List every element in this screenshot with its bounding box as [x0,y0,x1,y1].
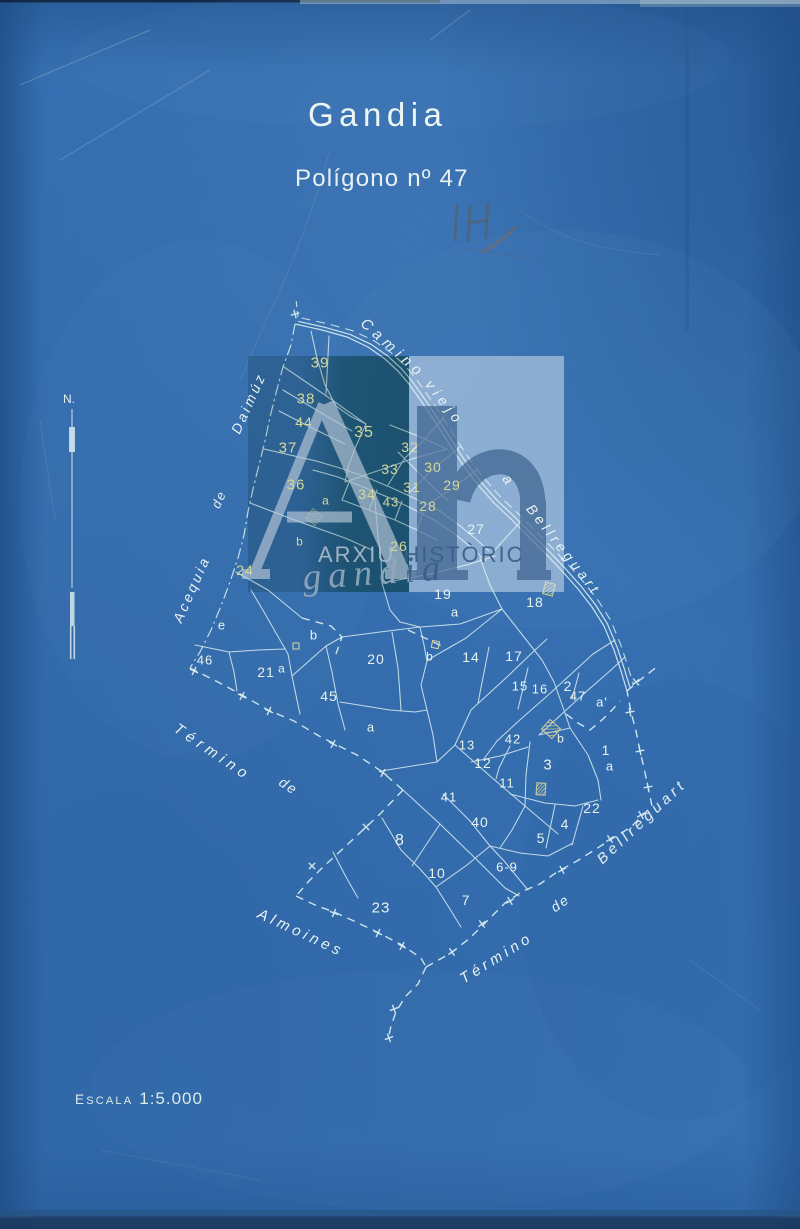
svg-text:11: 11 [499,776,515,791]
svg-text:32: 32 [401,439,419,455]
svg-text:b: b [426,649,434,663]
svg-text:e: e [218,618,226,633]
svg-text:b: b [557,731,565,745]
svg-text:29: 29 [443,477,461,493]
svg-text:30: 30 [424,459,442,475]
svg-text:46: 46 [197,653,213,668]
svg-text:a: a [606,759,614,774]
svg-text:41: 41 [441,790,457,805]
svg-text:37: 37 [279,439,298,456]
svg-text:15: 15 [512,679,528,694]
svg-text:27: 27 [467,521,485,537]
svg-text:10: 10 [428,865,446,881]
svg-text:16: 16 [532,682,548,697]
svg-text:a: a [367,720,375,735]
svg-text:3: 3 [543,756,552,773]
svg-text:22: 22 [583,800,601,816]
svg-text:35: 35 [354,424,374,441]
svg-text:20: 20 [367,651,385,667]
svg-text:47: 47 [570,689,586,704]
svg-text:33: 33 [381,461,399,477]
svg-text:4: 4 [561,816,570,832]
svg-text:6-9: 6-9 [496,860,518,875]
svg-text:38: 38 [297,390,316,407]
svg-text:7: 7 [462,892,471,908]
svg-text:13: 13 [459,738,475,753]
svg-text:19: 19 [434,586,452,602]
svg-text:23: 23 [372,899,391,916]
svg-text:b: b [296,534,304,548]
svg-text:24: 24 [236,562,254,578]
svg-text:N.: N. [63,392,75,406]
svg-text:18: 18 [526,594,544,610]
svg-text:14: 14 [462,649,480,665]
svg-text:21: 21 [257,664,275,680]
svg-text:1: 1 [602,742,611,758]
svg-text:39: 39 [311,354,330,371]
svg-text:Gandia: Gandia [308,96,447,133]
svg-text:26: 26 [390,538,408,554]
svg-text:28: 28 [419,498,437,514]
svg-text:43: 43 [383,495,399,510]
svg-text:45: 45 [320,688,338,704]
svg-text:Polígono nº 47: Polígono nº 47 [295,165,469,192]
svg-text:a: a [322,493,330,507]
svg-text:a': a' [596,695,608,710]
svg-text:44: 44 [295,414,313,430]
svg-text:40: 40 [471,814,489,830]
svg-text:12: 12 [474,755,492,771]
svg-text:b: b [310,628,318,643]
svg-text:5: 5 [537,830,546,846]
svg-text:42: 42 [505,732,521,747]
svg-text:8: 8 [395,832,405,849]
svg-text:a: a [451,605,459,620]
svg-text:36: 36 [287,476,306,493]
svg-text:31: 31 [403,479,421,495]
svg-text:34: 34 [358,486,376,502]
svg-text:17: 17 [505,648,523,664]
svg-text:a: a [278,661,286,675]
